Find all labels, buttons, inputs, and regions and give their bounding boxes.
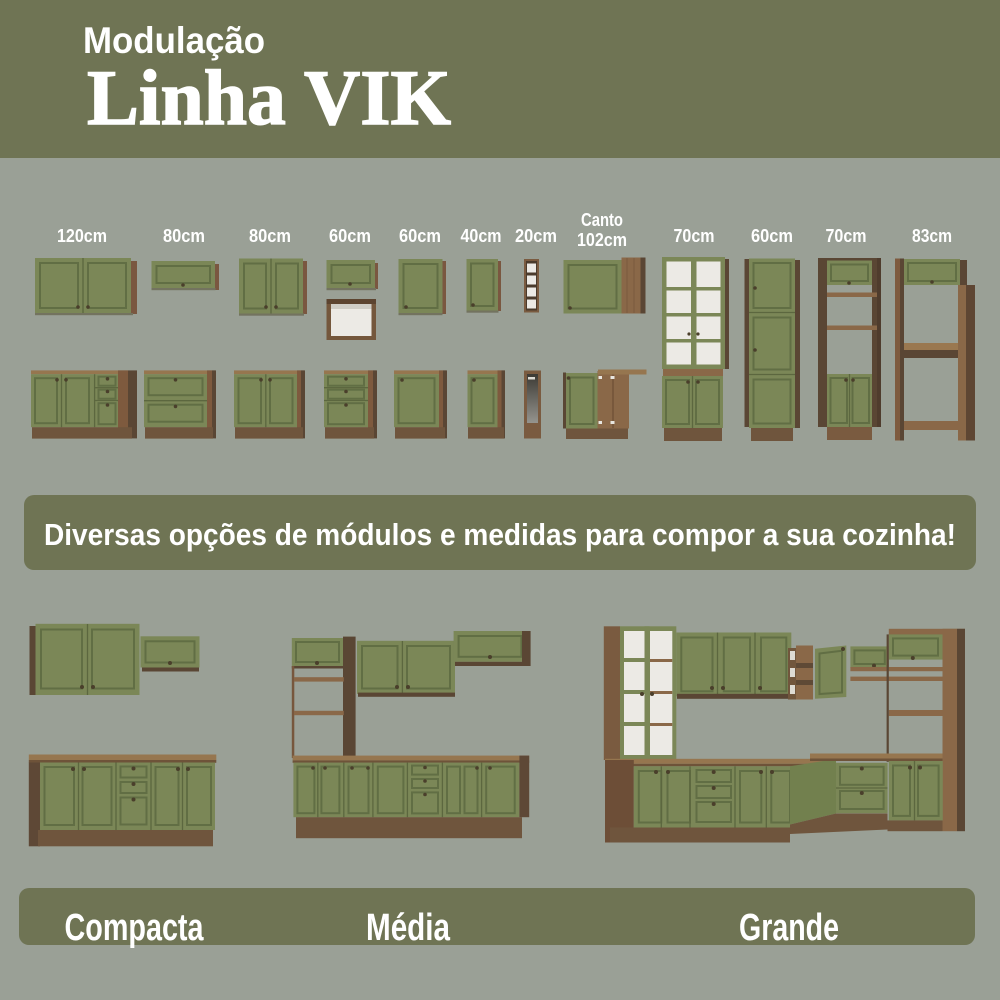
svg-text:70cm: 70cm — [674, 225, 715, 246]
svg-text:Média: Média — [366, 907, 451, 949]
svg-text:83cm: 83cm — [912, 225, 952, 246]
svg-text:20cm: 20cm — [515, 225, 557, 246]
svg-text:120cm: 120cm — [57, 225, 107, 246]
svg-text:102cm: 102cm — [577, 229, 627, 250]
svg-text:Compacta: Compacta — [65, 907, 205, 949]
svg-text:60cm: 60cm — [399, 225, 441, 246]
svg-text:80cm: 80cm — [163, 225, 205, 246]
svg-text:Diversas opções de módulos e m: Diversas opções de módulos e medidas par… — [44, 518, 956, 552]
svg-text:60cm: 60cm — [329, 225, 371, 246]
svg-text:Grande: Grande — [739, 907, 839, 949]
svg-text:Canto: Canto — [581, 209, 623, 230]
svg-text:60cm: 60cm — [751, 225, 793, 246]
svg-text:80cm: 80cm — [249, 225, 291, 246]
svg-text:40cm: 40cm — [461, 225, 502, 246]
svg-text:70cm: 70cm — [826, 225, 867, 246]
svg-text:Linha VIK: Linha VIK — [87, 54, 451, 141]
